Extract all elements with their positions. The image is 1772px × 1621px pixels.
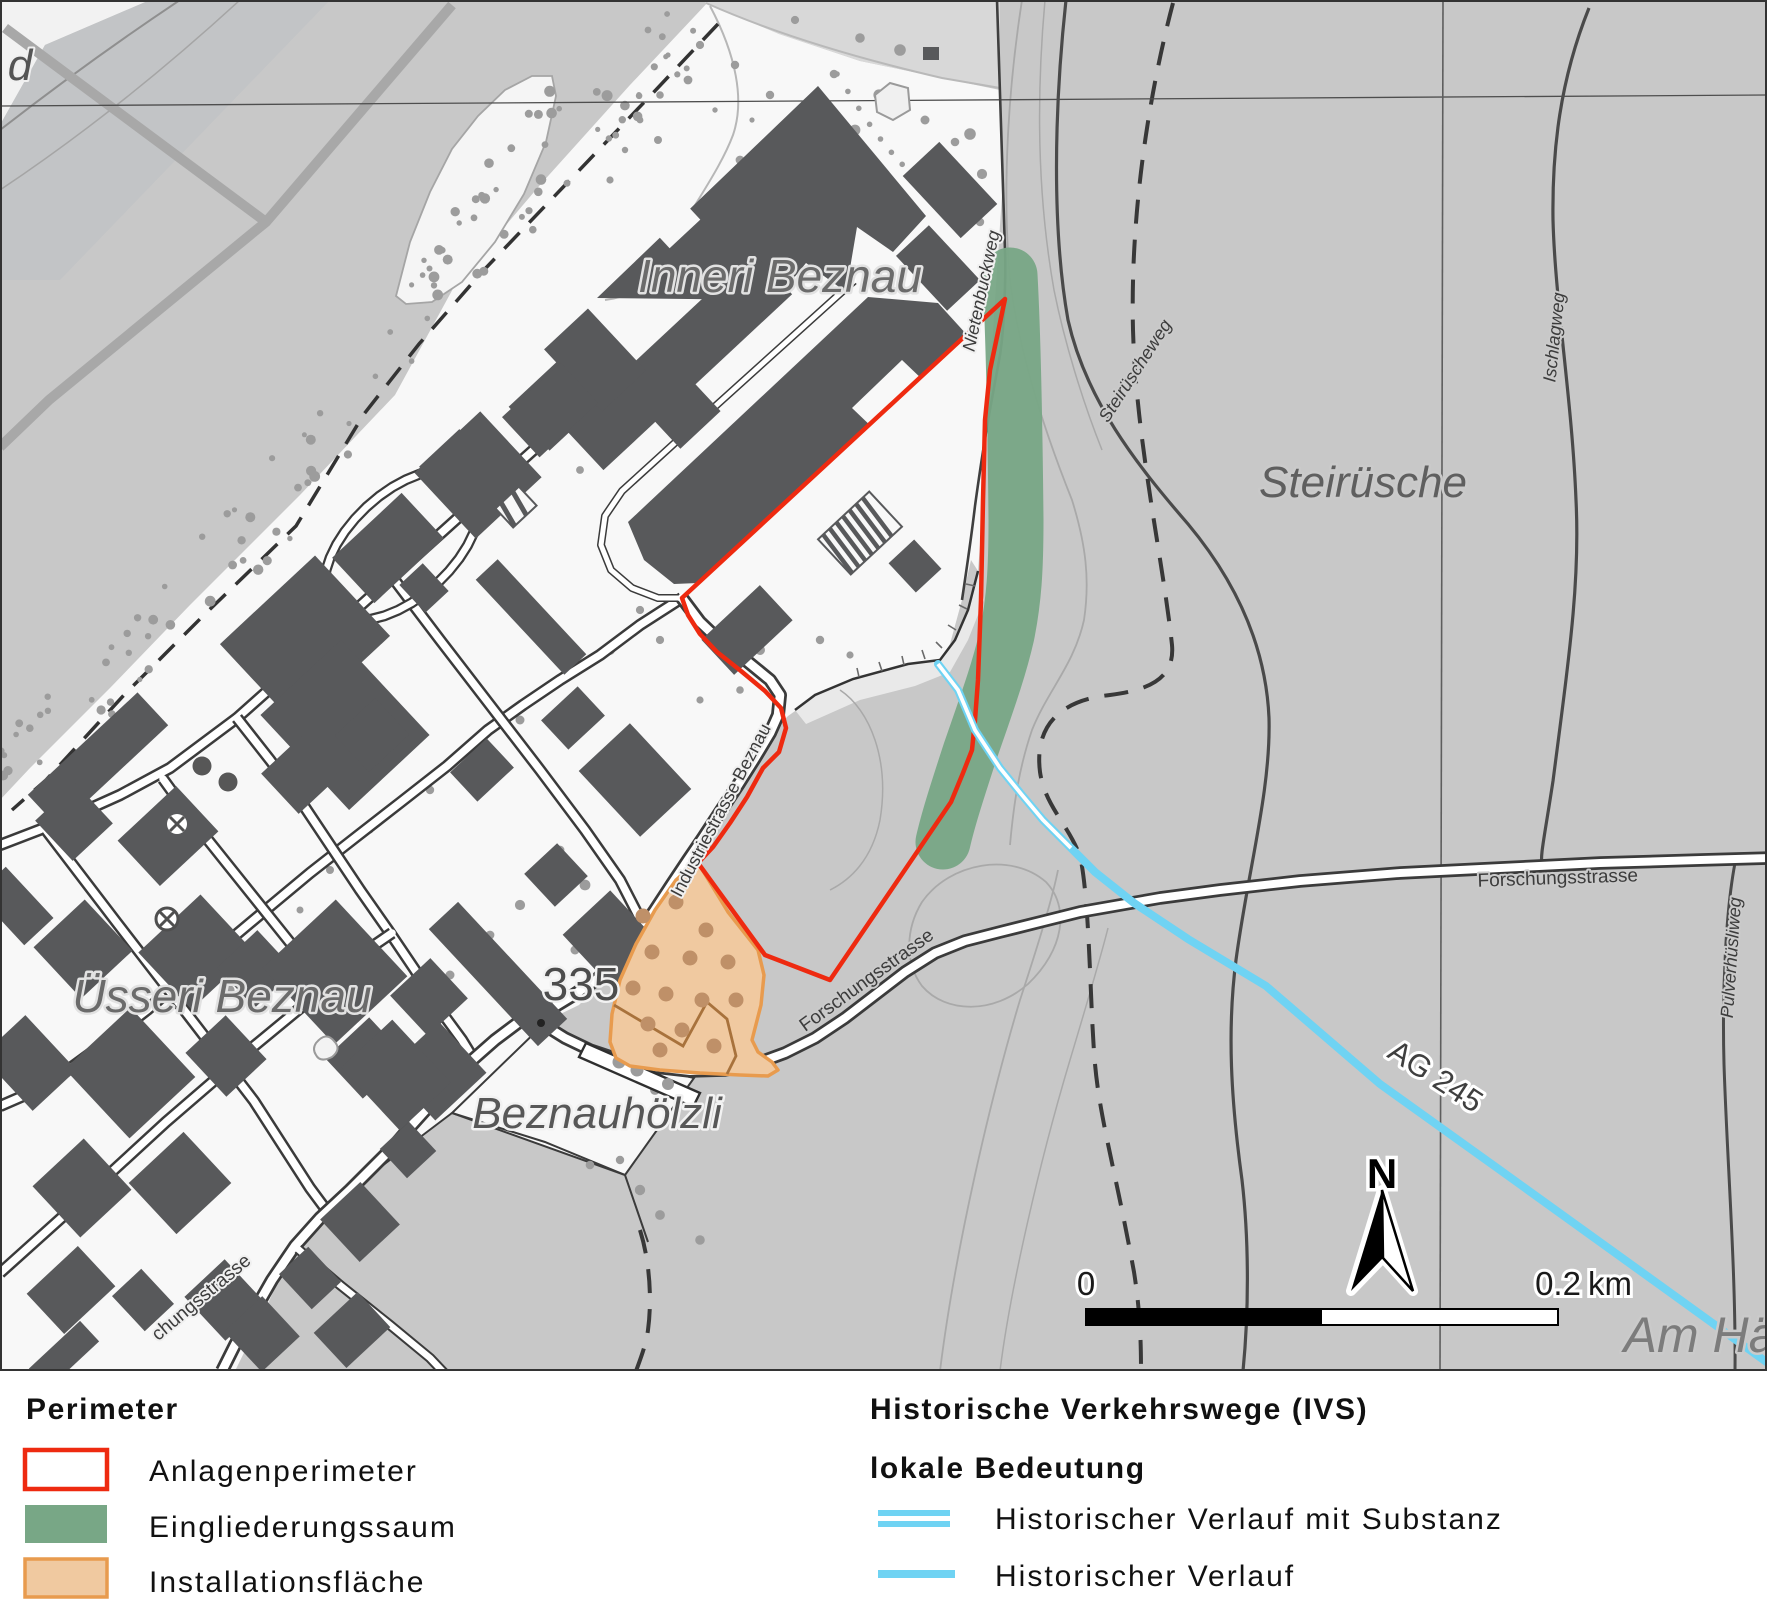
svg-text:Perimeter: Perimeter	[26, 1393, 179, 1426]
svg-text:Eingliederungssaum: Eingliederungssaum	[149, 1511, 457, 1544]
svg-text:Historische Verkehrswege (IVS): Historische Verkehrswege (IVS)	[870, 1393, 1368, 1426]
svg-text:Installationsfläche: Installationsfläche	[149, 1566, 425, 1599]
svg-text:Steirüsche: Steirüsche	[1259, 458, 1467, 507]
svg-text:d: d	[8, 41, 34, 90]
svg-text:Am Hä: Am Hä	[1621, 1307, 1772, 1363]
svg-text:Üsseri Beznau: Üsseri Beznau	[72, 970, 371, 1022]
svg-text:Historischer Verlauf mit Subst: Historischer Verlauf mit Substanz	[995, 1503, 1503, 1536]
svg-text:Inneri Beznau: Inneri Beznau	[638, 250, 922, 302]
svg-text:lokale Bedeutung: lokale Bedeutung	[870, 1452, 1146, 1485]
svg-text:km: km	[1588, 1265, 1632, 1302]
svg-text:Historischer Verlauf: Historischer Verlauf	[995, 1560, 1295, 1593]
svg-text:0: 0	[1077, 1265, 1095, 1302]
svg-text:Beznauhölzli: Beznauhölzli	[472, 1089, 723, 1138]
svg-text:Anlagenperimeter: Anlagenperimeter	[149, 1455, 418, 1488]
svg-text:335: 335	[543, 958, 620, 1010]
svg-text:0.2: 0.2	[1535, 1265, 1581, 1302]
